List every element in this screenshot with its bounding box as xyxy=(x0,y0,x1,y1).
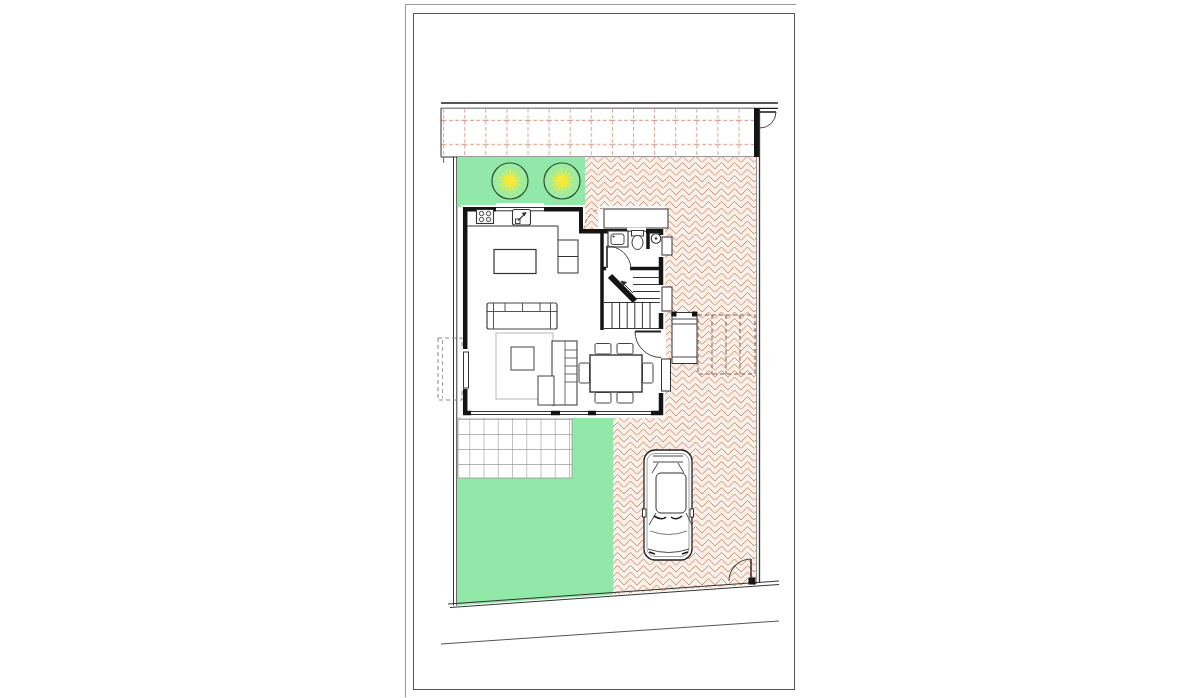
sofa xyxy=(487,303,557,329)
south-window-gap-3 xyxy=(596,409,651,418)
sidewalk xyxy=(441,108,776,163)
bath-sink-icon xyxy=(608,231,628,247)
dining-chair xyxy=(643,363,654,383)
coffee-table xyxy=(511,347,534,370)
planter-dashed-outline xyxy=(438,338,462,400)
terrace-grid xyxy=(458,418,572,478)
dining-chair xyxy=(617,393,633,404)
street-edge-lines xyxy=(441,103,778,108)
stove-icon xyxy=(477,210,494,224)
boundary-left-double-line xyxy=(454,157,457,606)
street-bottom-line xyxy=(441,621,779,644)
tree-starburst xyxy=(495,166,525,196)
site-plan-page xyxy=(0,0,1200,698)
dining-table xyxy=(590,355,642,392)
south-window-gap-2 xyxy=(560,409,588,418)
east-bath-window-sill xyxy=(662,237,672,255)
dining-chair xyxy=(595,344,611,355)
front-door-gap xyxy=(657,329,666,358)
east-south-window-sill xyxy=(662,359,671,391)
site-plan-drawing xyxy=(0,0,1200,698)
porch-post xyxy=(692,312,697,317)
south-window-gap-1 xyxy=(471,409,551,418)
gate-post-bottom xyxy=(749,578,756,585)
toilet-icon xyxy=(632,231,644,250)
kitchen-sink-icon xyxy=(513,210,531,226)
kitchen-island xyxy=(494,250,536,274)
tree-icon xyxy=(492,163,528,199)
dining-chair xyxy=(617,344,633,355)
car-icon xyxy=(643,450,694,560)
car-roof xyxy=(656,473,686,513)
west-window-frame xyxy=(464,352,469,388)
terrace xyxy=(458,418,572,478)
car-mirror-right xyxy=(690,509,694,517)
car-mirror-left xyxy=(643,509,647,517)
entry-porch xyxy=(672,313,697,364)
porch-post xyxy=(672,312,677,317)
east-stair-window-sill xyxy=(662,287,672,311)
street-top xyxy=(441,103,778,108)
dining-chair xyxy=(579,363,590,383)
tree-starburst xyxy=(547,166,577,196)
sidewalk-tiles xyxy=(441,109,757,158)
dining-chair xyxy=(595,393,611,404)
canopy-outline xyxy=(604,209,668,228)
tree-icon xyxy=(544,163,580,199)
front-garden xyxy=(458,157,585,207)
pedestrian-gate-swing-arc xyxy=(760,112,776,128)
